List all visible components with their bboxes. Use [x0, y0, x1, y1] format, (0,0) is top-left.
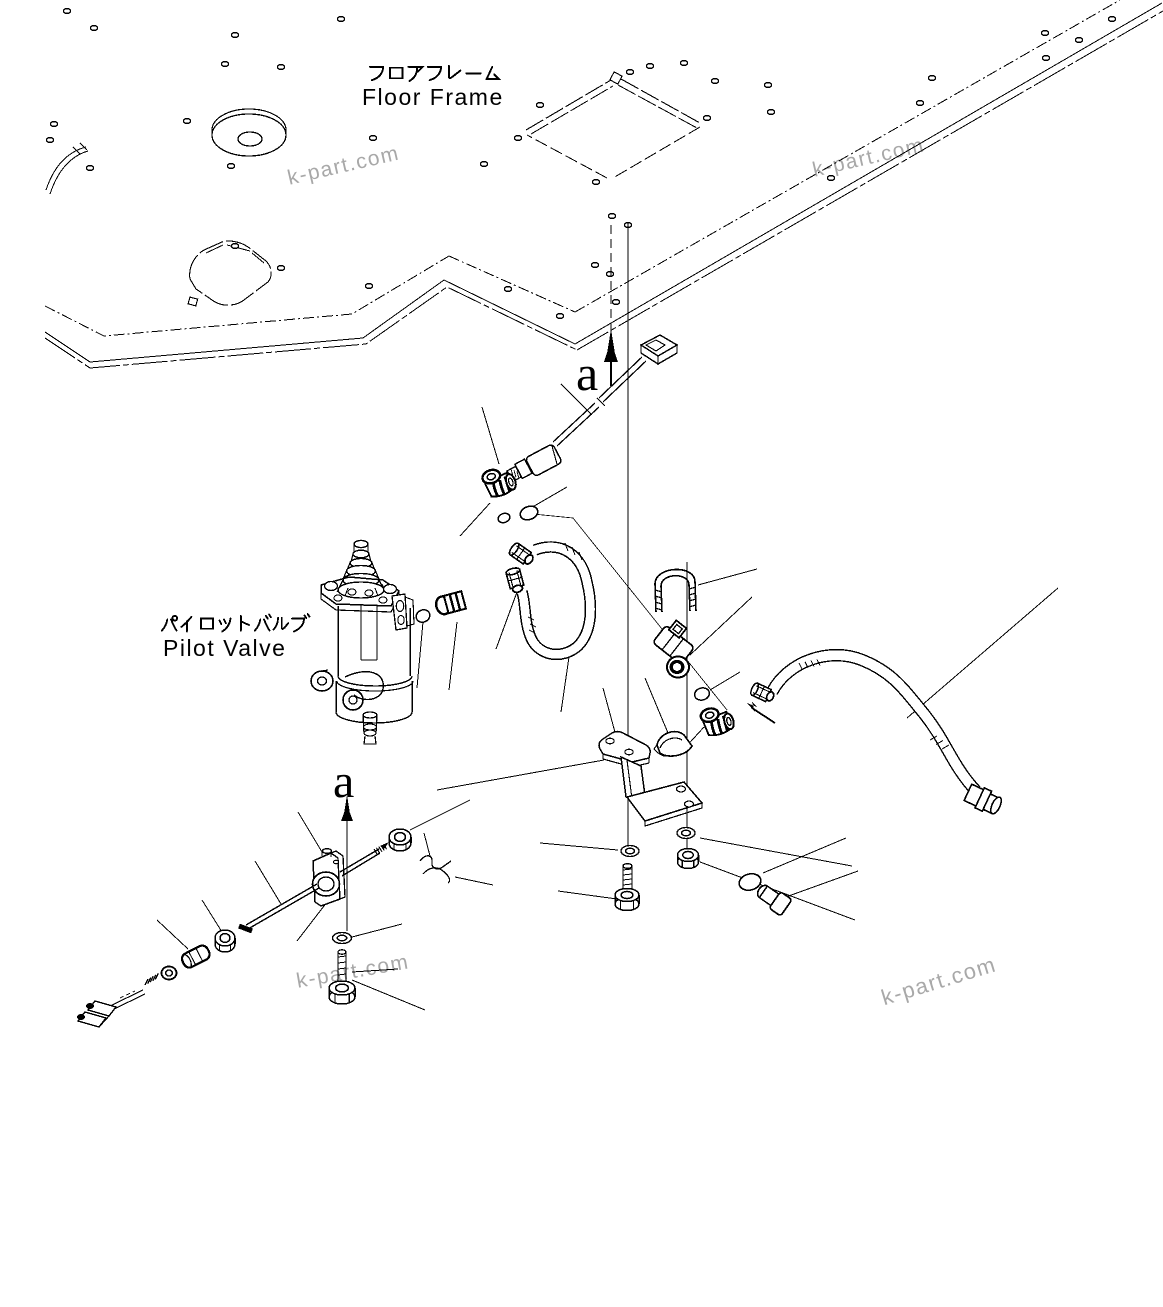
- svg-text:a: a: [333, 755, 354, 808]
- svg-text:a: a: [576, 345, 598, 401]
- svg-text:Pilot Valve: Pilot Valve: [163, 635, 286, 661]
- svg-text:Floor Frame: Floor Frame: [362, 84, 504, 110]
